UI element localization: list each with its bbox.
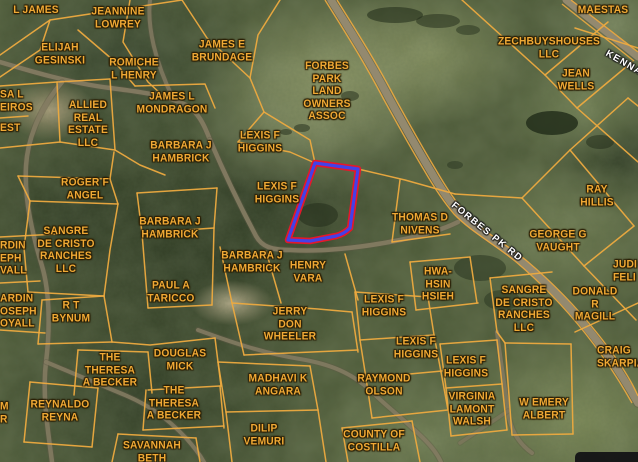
savannah-beth-label: SAVANNAH BETH bbox=[123, 440, 181, 462]
bottom-right-overlay-box bbox=[575, 452, 638, 462]
l-james-label: L JAMES bbox=[13, 4, 58, 17]
lexis-f-higgins-5-label: LEXIS F HIGGINS bbox=[444, 355, 489, 380]
fragment-rdin-eph-vall-label: RDIN EPH VALL bbox=[0, 239, 27, 277]
henry-vara-label: HENRY VARA bbox=[290, 260, 326, 285]
sangre-de-cristo-ranches-llc-2-label: SANGRE DE CRISTO RANCHES LLC bbox=[495, 284, 552, 334]
madhavi-k-angara-label: MADHAVI K ANGARA bbox=[249, 373, 308, 398]
fragment-sa-l-eiros-label: SA L EIROS bbox=[0, 89, 33, 114]
jerry-don-wheeler-label: JERRY DON WHEELER bbox=[264, 305, 316, 343]
r-t-bynum-label: R T BYNUM bbox=[52, 300, 90, 325]
zechbuyshouses-llc-label: ZECHBUYSHOUSES LLC bbox=[498, 36, 600, 61]
thomas-d-nivens-label: THOMAS D NIVENS bbox=[392, 212, 448, 237]
fragment-ardin-oseph-oyall-label: ARDIN OSEPH OYALL bbox=[0, 292, 37, 330]
sangre-de-cristo-ranches-llc-1-label: SANGRE DE CRISTO RANCHES LLC bbox=[37, 225, 94, 275]
hwa-hsin-hsieh-label: HWA- HSIN HSIEH bbox=[422, 265, 454, 303]
the-theresa-a-becker-1-label: THE THERESA A BECKER bbox=[83, 351, 138, 389]
lexis-f-higgins-4-label: LEXIS F HIGGINS bbox=[394, 336, 439, 361]
lexis-f-higgins-3-label: LEXIS F HIGGINS bbox=[362, 294, 407, 319]
donald-r-magill-label: DONALD R MAGILL bbox=[573, 285, 618, 323]
the-theresa-a-becker-2-label: THE THERESA A BECKER bbox=[147, 384, 202, 422]
kenna-rd-road-label: KENNA bbox=[604, 48, 638, 78]
dilip-vemuri-label: DILIP VEMURI bbox=[244, 423, 285, 448]
reynaldo-reyna-label: REYNALDO REYNA bbox=[31, 399, 90, 424]
barbara-j-hambrick-1-label: BARBARA J HAMBRICK bbox=[150, 140, 212, 165]
barbara-j-hambrick-3-label: BARBARA J HAMBRICK bbox=[221, 250, 283, 275]
jeannine-lowrey-label: JEANNINE LOWREY bbox=[91, 6, 144, 31]
george-g-vaught-label: GEORGE G VAUGHT bbox=[529, 229, 586, 254]
parcel-map[interactable]: L JAMESJEANNINE LOWREYELIJAH GESINSKIROM… bbox=[0, 0, 638, 462]
lexis-f-higgins-1-label: LEXIS F HIGGINS bbox=[238, 130, 283, 155]
jean-wells-label: JEAN WELLS bbox=[558, 68, 595, 93]
paul-a-taricco-label: PAUL A TARICCO bbox=[147, 280, 194, 305]
elijah-gesinski-label: ELIJAH GESINSKI bbox=[35, 42, 85, 67]
james-l-mondragon-label: JAMES L MONDRAGON bbox=[136, 91, 207, 116]
james-e-brundage-label: JAMES E BRUNDAGE bbox=[192, 39, 253, 64]
romiche-l-henry-label: ROMICHE L HENRY bbox=[109, 57, 159, 82]
owner-label-layer: L JAMESJEANNINE LOWREYELIJAH GESINSKIROM… bbox=[0, 0, 638, 462]
county-of-costilla-label: COUNTY OF COSTILLA bbox=[343, 429, 405, 454]
douglas-mick-label: DOUGLAS MICK bbox=[154, 348, 206, 373]
barbara-j-hambrick-2-label: BARBARA J HAMBRICK bbox=[139, 216, 201, 241]
raymond-olson-label: RAYMOND OLSON bbox=[357, 373, 410, 398]
fragment-judi-feli-label: JUDI FELI bbox=[613, 259, 637, 284]
w-emery-albert-label: W EMERY ALBERT bbox=[519, 397, 569, 422]
lexis-f-higgins-2-label: LEXIS F HIGGINS bbox=[255, 181, 300, 206]
forbes-park-land-owners-assoc-label: FORBES PARK LAND OWNERS ASSOC bbox=[303, 60, 350, 123]
craig-skarpia-label: CRAIG SKARPIA bbox=[597, 345, 638, 370]
allied-real-estate-llc-label: ALLIED REAL ESTATE LLC bbox=[68, 99, 108, 149]
virginia-lamont-walsh-label: VIRGINIA LAMONT WALSH bbox=[449, 390, 496, 428]
roger-f-angel-label: ROGER F ANGEL bbox=[61, 177, 109, 202]
fragment-est-label: EST bbox=[0, 122, 20, 135]
ray-hillis-label: RAY HILLIS bbox=[580, 184, 614, 209]
fragment-m-r-label: M R bbox=[0, 401, 9, 426]
maestas-label: MAESTAS bbox=[578, 4, 629, 17]
forbes-pk-rd-road-label: FORBES PK RD bbox=[449, 200, 525, 264]
